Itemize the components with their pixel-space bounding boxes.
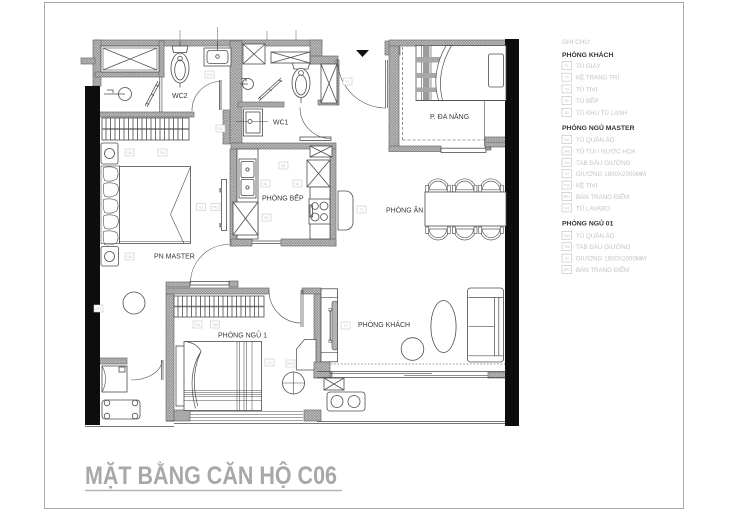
svg-text:BP1: BP1 <box>564 195 571 199</box>
svg-text:T3: T3 <box>344 324 348 328</box>
svg-text:TAB ĐẦU GIƯỜNG: TAB ĐẦU GIƯỜNG <box>576 244 631 251</box>
svg-text:TỦ QUẦN ÁO: TỦ QUẦN ÁO <box>576 233 615 240</box>
svg-text:T1: T1 <box>346 80 350 84</box>
svg-text:TA4: TA4 <box>564 234 570 238</box>
svg-text:BP1: BP1 <box>95 307 101 311</box>
svg-text:PHÒNG KHÁCH: PHÒNG KHÁCH <box>358 320 410 329</box>
svg-text:TA1: TA1 <box>564 138 570 142</box>
svg-text:GIƯỜNG 1800X2000MM: GIƯỜNG 1800X2000MM <box>576 171 646 178</box>
svg-text:TA3: TA3 <box>564 161 570 165</box>
svg-text:G2: G2 <box>565 257 570 261</box>
svg-text:T2: T2 <box>565 76 569 80</box>
svg-text:TA3: TA3 <box>127 151 133 155</box>
svg-text:B2: B2 <box>296 182 300 186</box>
svg-text:TỦ BẾP: TỦ BẾP <box>576 98 598 105</box>
svg-text:KỆ TRANG TRÍ: KỆ TRANG TRÍ <box>576 74 619 82</box>
svg-text:TV1: TV1 <box>564 184 570 188</box>
svg-text:WC1: WC1 <box>273 120 289 127</box>
svg-text:TA3: TA3 <box>127 255 133 259</box>
svg-text:B1: B1 <box>264 182 268 186</box>
svg-text:TỦ QUẦN ÁO: TỦ QUẦN ÁO <box>576 137 615 144</box>
svg-text:TA4: TA4 <box>195 323 201 327</box>
svg-text:PHÒNG NGỦ 01: PHÒNG NGỦ 01 <box>562 219 614 228</box>
svg-text:GHI CHÚ:: GHI CHÚ: <box>562 37 591 46</box>
svg-text:WC2: WC2 <box>172 93 188 100</box>
svg-text:TA1: TA1 <box>160 151 166 155</box>
svg-text:LV1: LV1 <box>564 206 570 210</box>
svg-text:BÀN TRANG ĐIỂM: BÀN TRANG ĐIỂM <box>576 267 629 274</box>
svg-text:LV1: LV1 <box>207 73 213 77</box>
svg-text:PN MASTER: PN MASTER <box>154 254 195 261</box>
svg-text:G1: G1 <box>565 172 570 176</box>
svg-text:BP2: BP2 <box>564 268 571 272</box>
svg-text:G2: G2 <box>267 361 271 365</box>
svg-text:T1: T1 <box>565 64 569 68</box>
svg-text:T3: T3 <box>565 87 569 91</box>
svg-text:TỦ TÚI / NƯỚC HOA: TỦ TÚI / NƯỚC HOA <box>576 148 637 155</box>
svg-text:B2: B2 <box>565 111 569 115</box>
svg-text:MẶT BẰNG CĂN HỘ C06: MẶT BẰNG CĂN HỘ C06 <box>85 460 337 490</box>
svg-text:T3: T3 <box>360 208 364 212</box>
svg-text:PHÒNG KHÁCH: PHÒNG KHÁCH <box>562 50 613 59</box>
svg-text:TỦ LAVABO: TỦ LAVABO <box>576 205 610 212</box>
svg-text:B2: B2 <box>265 216 269 220</box>
svg-text:TA2: TA2 <box>564 149 570 153</box>
svg-text:G1: G1 <box>199 206 203 210</box>
svg-text:TA5: TA5 <box>564 245 570 249</box>
svg-text:TỦ TIVI: TỦ TIVI <box>576 86 597 93</box>
svg-text:P. ĐA NĂNG: P. ĐA NĂNG <box>430 112 469 121</box>
svg-text:TA2: TA2 <box>218 127 224 131</box>
svg-text:TỦ GIÀY: TỦ GIÀY <box>576 63 601 70</box>
svg-text:PHÒNG ĂN: PHÒNG ĂN <box>386 206 423 215</box>
svg-text:BÀN TRANG ĐIỂM: BÀN TRANG ĐIỂM <box>576 194 629 201</box>
svg-text:B1: B1 <box>565 99 569 103</box>
svg-text:TA1: TA1 <box>213 206 219 210</box>
svg-text:PHÒNG NGỦ 1: PHÒNG NGỦ 1 <box>218 331 267 340</box>
svg-text:B1: B1 <box>282 164 286 168</box>
svg-text:KỆ TIVI: KỆ TIVI <box>576 182 597 190</box>
svg-text:BP2: BP2 <box>287 362 293 366</box>
svg-text:TA5: TA5 <box>212 323 218 327</box>
svg-text:PHÒNG NGỦ MASTER: PHÒNG NGỦ MASTER <box>562 123 635 132</box>
svg-text:TỦ KHU TỦ LẠNH: TỦ KHU TỦ LẠNH <box>576 110 627 117</box>
svg-text:TAB ĐẦU GIƯỜNG: TAB ĐẦU GIƯỜNG <box>576 160 631 167</box>
svg-text:GIƯỜNG 1600X2000MM: GIƯỜNG 1600X2000MM <box>576 256 646 263</box>
